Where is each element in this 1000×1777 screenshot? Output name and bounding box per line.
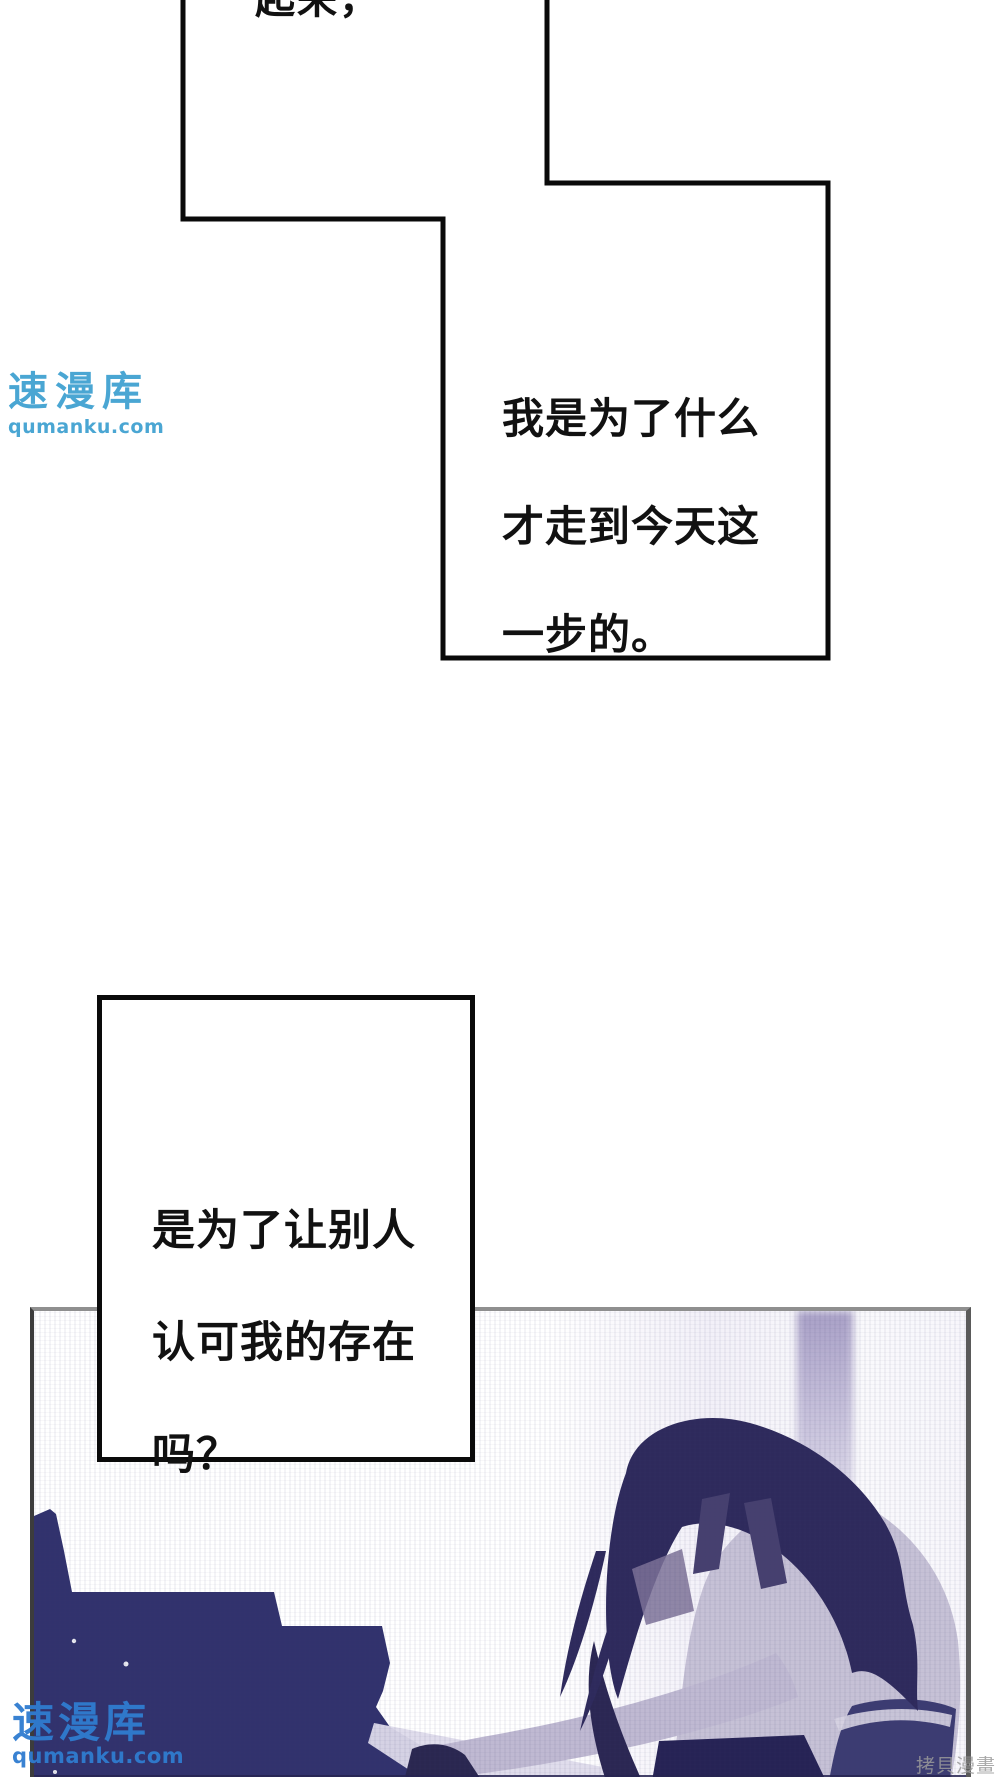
dialogue-line: 认可我的存在 bbox=[152, 1315, 416, 1371]
watermark-brand-text: 速漫库 bbox=[12, 1702, 184, 1744]
comic-page: 起来， 我是为了什么 才走到今天这 一步的。 bbox=[0, 0, 1000, 1777]
site-watermark-lower: 速漫库 qumanku.com bbox=[12, 1702, 184, 1767]
dialogue-line: 是为了让别人 bbox=[152, 1203, 416, 1259]
watermark-url-text: qumanku.com bbox=[8, 418, 164, 437]
site-watermark-upper: 速漫库 qumanku.com bbox=[8, 372, 164, 437]
copy-credit-text: 拷貝漫畫 bbox=[916, 1751, 996, 1777]
hip-shadow bbox=[652, 1735, 826, 1777]
speck bbox=[53, 1770, 57, 1774]
watermark-url-text: qumanku.com bbox=[12, 1746, 184, 1767]
speck bbox=[72, 1639, 76, 1643]
speck bbox=[124, 1662, 129, 1667]
dialogue-line: 吗？ bbox=[152, 1427, 416, 1483]
dialogue-monologue-2: 是为了让别人 认可我的存在 吗？ bbox=[152, 1147, 416, 1539]
speech-box: 是为了让别人 认可我的存在 吗？ bbox=[97, 995, 475, 1462]
watermark-brand-text: 速漫库 bbox=[8, 372, 164, 412]
